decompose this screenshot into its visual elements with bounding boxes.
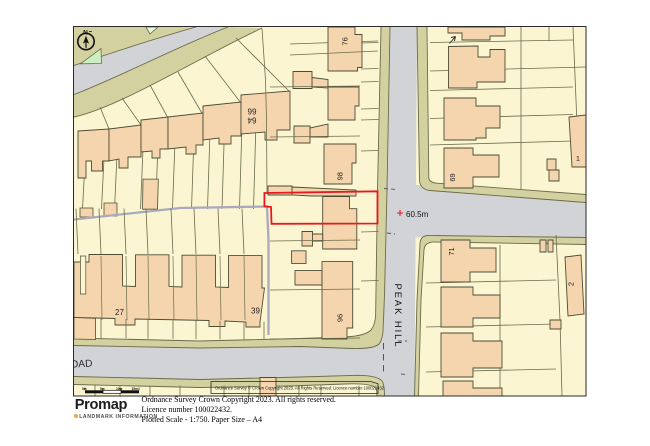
svg-text:96: 96 <box>336 314 345 322</box>
svg-text:76: 76 <box>341 37 350 45</box>
svg-text:69: 69 <box>448 173 457 181</box>
svg-text:1: 1 <box>576 156 580 163</box>
svg-text:66: 66 <box>247 107 256 116</box>
svg-text:Ordnance Survey © Crown Copyri: Ordnance Survey © Crown Copyright 2023. … <box>215 385 385 390</box>
svg-text:PEAK HILL: PEAK HILL <box>393 284 403 349</box>
svg-text:71: 71 <box>447 247 456 255</box>
svg-text:27: 27 <box>115 308 124 317</box>
svg-text:39: 39 <box>251 307 260 316</box>
svg-text:N: N <box>83 29 88 36</box>
svg-text:64: 64 <box>247 116 256 125</box>
svg-text:98: 98 <box>335 172 344 180</box>
svg-text:2: 2 <box>567 282 576 286</box>
svg-text:60.5m: 60.5m <box>406 210 429 219</box>
